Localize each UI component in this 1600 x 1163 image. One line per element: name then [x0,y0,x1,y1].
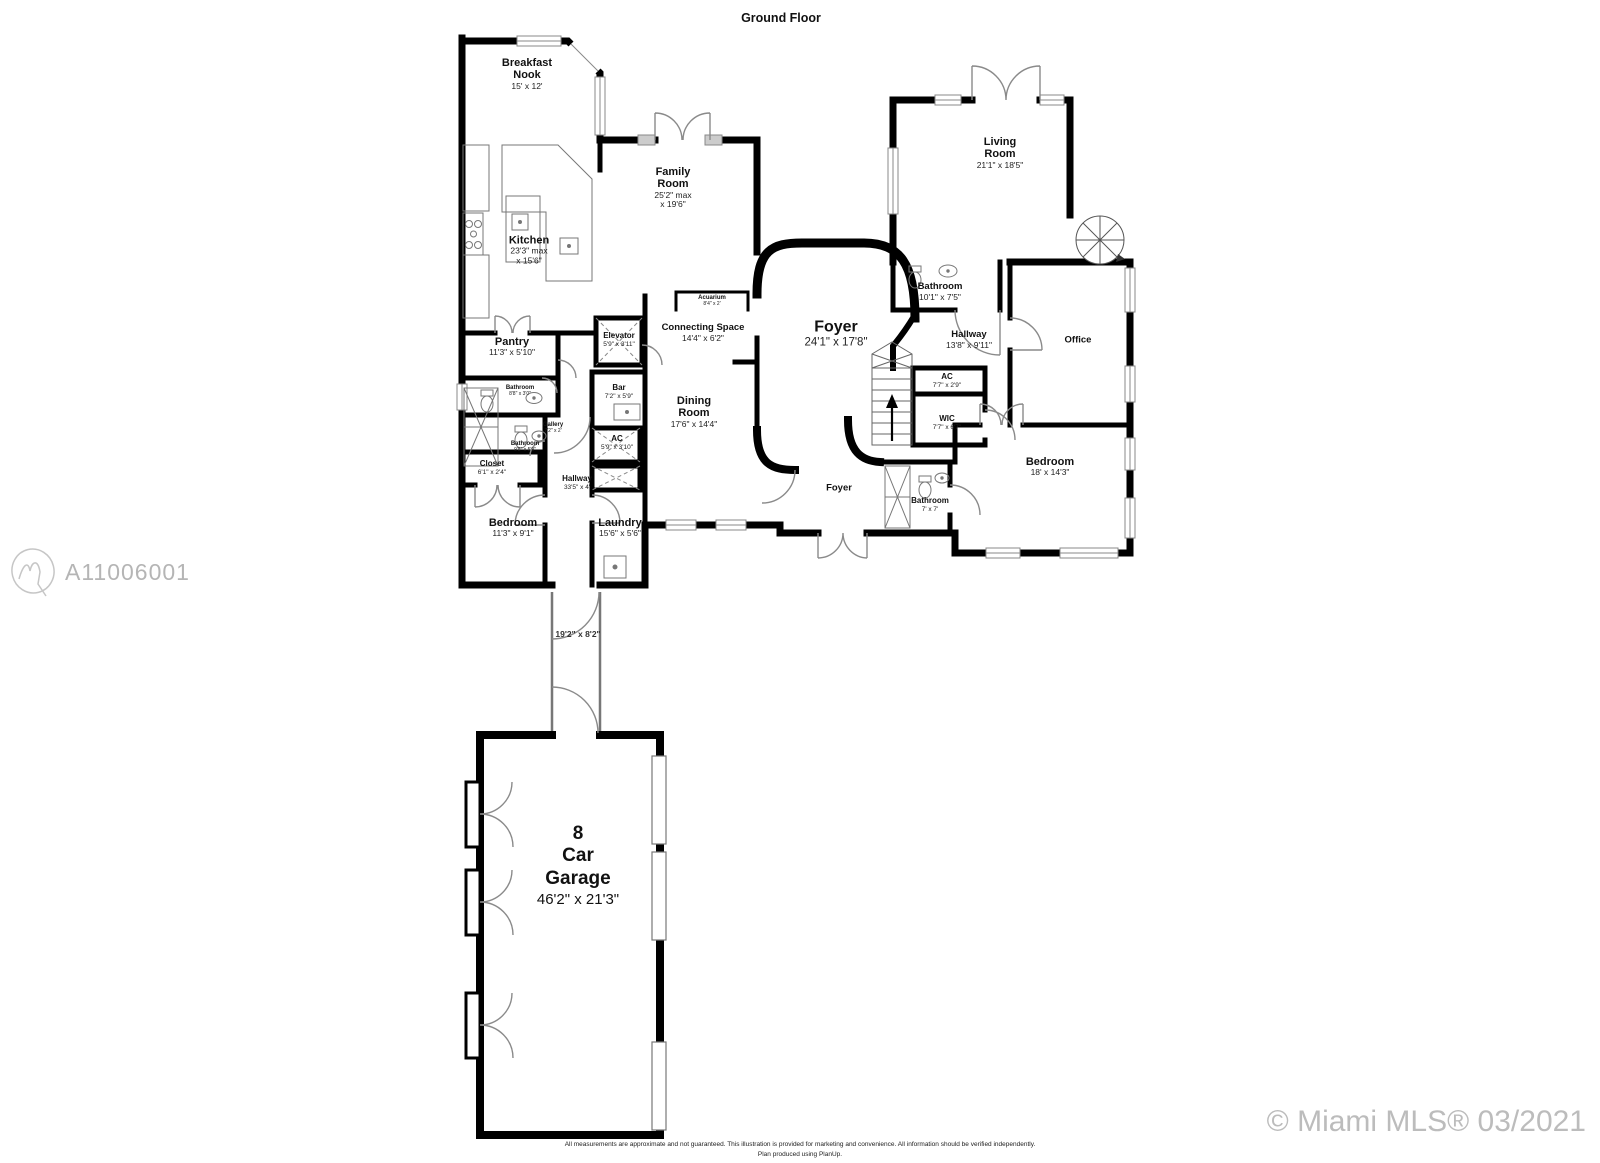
room-name: WIC [912,415,982,424]
room-dims: 7'2" x 2' [528,429,578,435]
room-label-living-room: Living Room 21'1" x 18'5" [970,136,1030,170]
room-name: Living Room [970,136,1030,161]
room-label-wic: WIC 7'7" x 6'7" [912,415,982,431]
room-name: Bathroom [900,497,960,506]
room-name: Closet [462,460,522,469]
floor-plan: Ground Floor Breakfast Nook 15' x 12' Ki… [0,0,1600,1163]
room-label-laundry: Laundry 15'6" x 5'6" [585,517,655,539]
room-label-bar: Bar 7'2" x 5'9" [594,384,644,400]
washer-icon [604,556,626,578]
room-name: Car [508,845,648,867]
disclaimer-line: Plan produced using PlanUp. [565,1150,1036,1160]
room-dims: 5'9" x 3'10" [589,444,645,451]
room-dims: 24'1" x 17'8" [771,337,901,350]
room-name: Office [1043,336,1113,347]
floor-plan-drawing [0,0,1600,1163]
interior-walls [462,140,1130,585]
spiral-staircase-icon [1076,216,1125,264]
room-dims: 11'3" x 9'1" [473,529,553,539]
kitchen-fixtures [463,145,592,318]
miami-mls-logo-icon [10,546,58,598]
room-dims: 7'7" x 6'7" [912,424,982,431]
room-dims: 21'1" x 18'5" [970,161,1030,171]
room-name: Hallway [542,475,612,484]
room-dims: 17'6" x 14'4" [664,420,724,430]
room-label-acuarium: Acuarium 8'4" x 2' [677,295,747,307]
exterior-walls [462,38,1130,585]
copyright-watermark: © Miami MLS® 03/2021 [1267,1105,1586,1139]
room-label-hallway-left: Hallway 33'5" x 4' [542,475,612,491]
room-label-garage: 8 Car Garage 46'2" x 21'3" [508,823,648,909]
room-dims: 5'9" x 3'11" [592,341,646,348]
room-label-bathroom-right: Bathroom 7' x 7' [900,497,960,513]
room-dims: 6'1" x 2'4" [462,469,522,476]
room-name: Bar [594,384,644,393]
room-label-closet: Closet 6'1" x 2'4" [462,460,522,476]
room-name: Dining Room [664,395,724,420]
room-label-ac-right: AC 7'7" x 2'9" [912,373,982,389]
room-dims: 19'2" x 8'2" [555,629,600,639]
room-label-elevator: Elevator 5'9" x 3'11" [592,332,646,348]
room-label-bathroom-small-lower: Bathroom 9'8" x 5'9" [495,441,555,453]
room-name: Foyer [771,319,901,337]
room-label-breakfast-nook: Breakfast Nook 15' x 12' [487,57,567,91]
room-label-pantry: Pantry 11'3" x 5'10" [472,336,552,358]
room-dims: 15'6" x 5'6" [585,529,655,539]
room-dims: 46'2" x 21'3" [508,892,648,909]
garage-side-door-niches [466,782,480,1058]
room-label-connecting-space: Connecting Space 14'4" x 6'2" [656,323,751,343]
room-name: 8 [508,823,648,845]
room-dims: x 15'6" [494,256,564,266]
room-dims: 9'8" x 5'9" [495,448,555,454]
room-dims: 7'7" x 2'9" [912,382,982,389]
room-label-ac-left: AC 5'9" x 3'10" [589,435,645,451]
room-label-bedroom-right: Bedroom 18' x 14'3" [1005,456,1095,478]
room-dims: 13'8" x 9'11" [924,341,1014,351]
room-dims: 7' x 7' [900,506,960,513]
room-label-bathroom-small-upper: Bathroom 8'8" x 3'0" [490,385,550,397]
toilet-icon [919,476,931,498]
room-label-hallway-right: Hallway 13'8" x 9'11" [924,330,1014,350]
room-label-bedroom-left: Bedroom 11'3" x 9'1" [473,517,553,539]
room-label-foyer: Foyer 24'1" x 17'8" [771,319,901,350]
listing-id: A11006001 [65,559,190,586]
room-dims: 15' x 12' [487,82,567,92]
room-name: Breakfast Nook [487,57,567,82]
room-name: Garage [508,868,648,890]
room-label-bathroom-top: Bathroom 10'1" x 7'5" [895,282,985,302]
stove-icon [463,213,483,255]
room-name: Family Room [643,166,703,191]
page-title: Ground Floor [741,11,821,25]
room-name: Elevator [592,332,646,341]
room-dims: 10'1" x 7'5" [895,293,985,303]
room-label-foyer-small: Foyer [809,484,869,495]
room-label-passage: 19'2" x 8'2" [533,624,623,642]
room-dims: 18' x 14'3" [1005,468,1095,478]
room-dims: 8'4" x 2' [677,302,747,308]
room-dims: 11'3" x 5'10" [472,348,552,358]
room-label-dining-room: Dining Room 17'6" x 14'4" [664,395,724,429]
sink-icon [939,265,957,277]
room-dims: 33'5" x 4' [542,484,612,491]
room-label-office: Office [1043,336,1113,347]
bar-sink-icon [614,404,640,420]
listing-watermark: A11006001 [10,546,190,598]
room-label-kitchen: Kitchen 23'3" max x 15'6" [494,234,564,265]
room-dims: 8'8" x 3'0" [490,392,550,398]
room-label-gallery: Gallery 7'2" x 2' [528,422,578,434]
room-name: AC [589,435,645,444]
room-dims: x 19'6" [643,200,703,210]
sink-icon [935,473,949,483]
garage-walls [480,735,660,1135]
footer-disclaimer: All measurements are approximate and not… [565,1140,1036,1160]
disclaimer-line: All measurements are approximate and not… [565,1140,1036,1150]
room-name: AC [912,373,982,382]
room-label-family-room: Family Room 25'2" max x 19'6" [643,166,703,210]
room-dims: 14'4" x 6'2" [656,334,751,344]
room-dims: 7'2" x 5'9" [594,393,644,400]
room-name: Foyer [809,484,869,495]
